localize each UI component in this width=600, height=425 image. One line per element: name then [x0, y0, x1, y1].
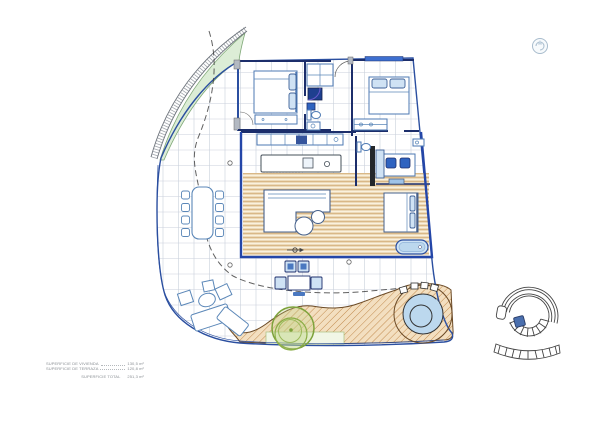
- toilet: [307, 110, 321, 120]
- door-jamb: [348, 57, 353, 64]
- sail-canopy-fill: [160, 33, 245, 160]
- stair-landing: [496, 305, 507, 319]
- chair: [275, 277, 286, 289]
- kitchen-island: [261, 155, 341, 172]
- tree-icon: [272, 307, 314, 350]
- legend-total-label: SUPERFICIE TOTAL: [81, 375, 120, 380]
- deck-bed: [384, 193, 418, 232]
- side-table: [202, 280, 215, 292]
- area-legend: SUPERFICIE DE VIVIENDA 130,5 m² SUPERFIC…: [46, 362, 144, 379]
- sink: [386, 158, 396, 168]
- stair-marker: [513, 315, 525, 327]
- toilet: [357, 142, 371, 152]
- oval-table: [197, 291, 217, 309]
- partition-wall: [370, 146, 375, 186]
- terrace-dining: [182, 187, 224, 239]
- island-sink: [303, 158, 313, 168]
- door-jamb: [234, 118, 240, 130]
- pillow: [410, 196, 415, 211]
- window-band: [365, 57, 403, 62]
- legend-label: SUPERFICIE DE TERRAZA: [46, 367, 98, 372]
- pillow: [390, 79, 405, 88]
- compass-icon: [533, 39, 548, 54]
- dotted-leader: [101, 365, 126, 366]
- cooktop: [296, 136, 307, 145]
- coffee-table: [295, 217, 313, 235]
- dotted-leader: [100, 369, 125, 370]
- table: [288, 276, 310, 290]
- sail-canopy: [151, 27, 247, 160]
- sink: [400, 158, 410, 168]
- dining-table: [192, 187, 213, 239]
- pillow: [410, 213, 415, 228]
- pillow: [372, 79, 387, 88]
- kitchen: [257, 134, 343, 173]
- sink: [307, 122, 320, 130]
- pillow: [289, 93, 296, 109]
- bench: [255, 115, 297, 124]
- tray: [293, 292, 305, 296]
- legend-total-row: SUPERFICIE TOTAL 251,3 m²: [46, 375, 144, 380]
- tv-bench: [376, 150, 384, 178]
- side-table: [312, 211, 325, 224]
- spiral-staircase-icon: [494, 287, 560, 359]
- fixture: [307, 103, 315, 110]
- entry-bathroom: [307, 64, 333, 130]
- pillow: [289, 74, 296, 90]
- outdoor-table-set: [275, 261, 322, 296]
- side-table: [177, 290, 193, 305]
- legend-total-value: 251,3 m²: [127, 375, 144, 380]
- bedroom-1: [254, 71, 297, 124]
- legend-row-terraza: SUPERFICIE DE TERRAZA 120,8 m²: [46, 367, 144, 372]
- chair: [311, 277, 322, 289]
- side-table: [215, 284, 232, 300]
- legend-value: 120,8 m²: [127, 367, 144, 372]
- sun-loungers: [177, 280, 249, 337]
- page: { "legend": { "rows": [ {"label": "SUPER…: [0, 0, 600, 425]
- bench: [389, 179, 404, 184]
- door-jamb: [234, 60, 240, 69]
